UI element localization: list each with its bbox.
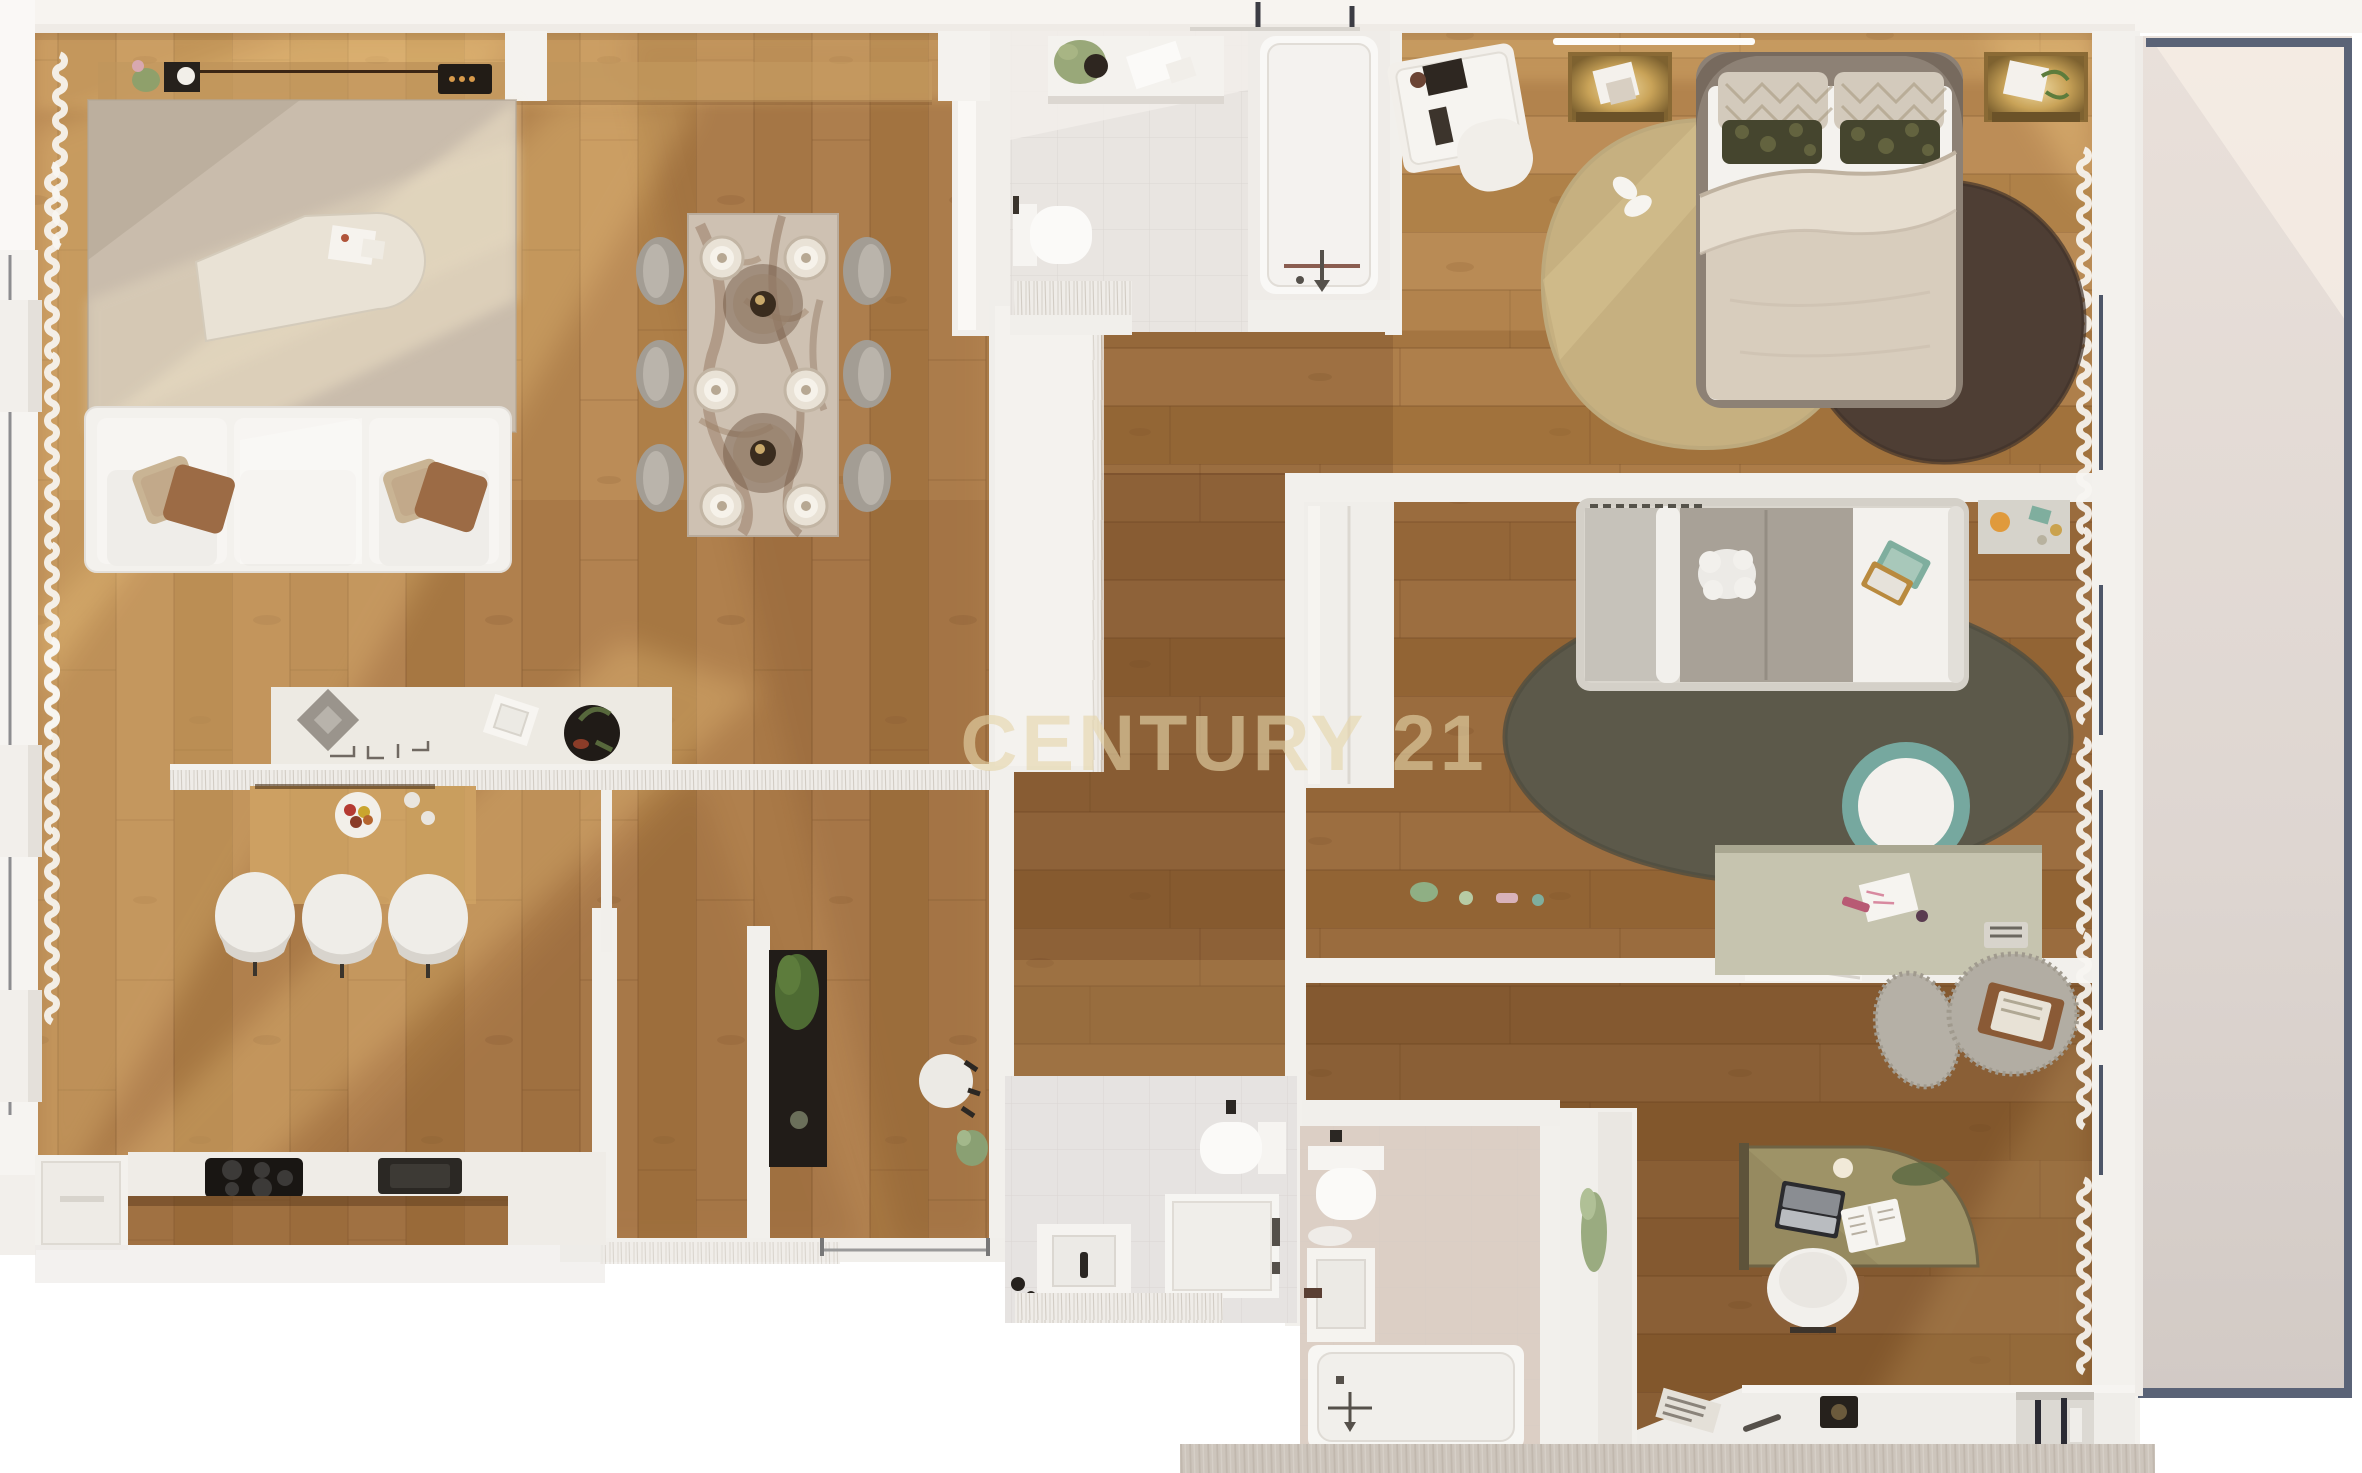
svg-text:CENTURY 21: CENTURY 21 bbox=[960, 698, 1487, 787]
